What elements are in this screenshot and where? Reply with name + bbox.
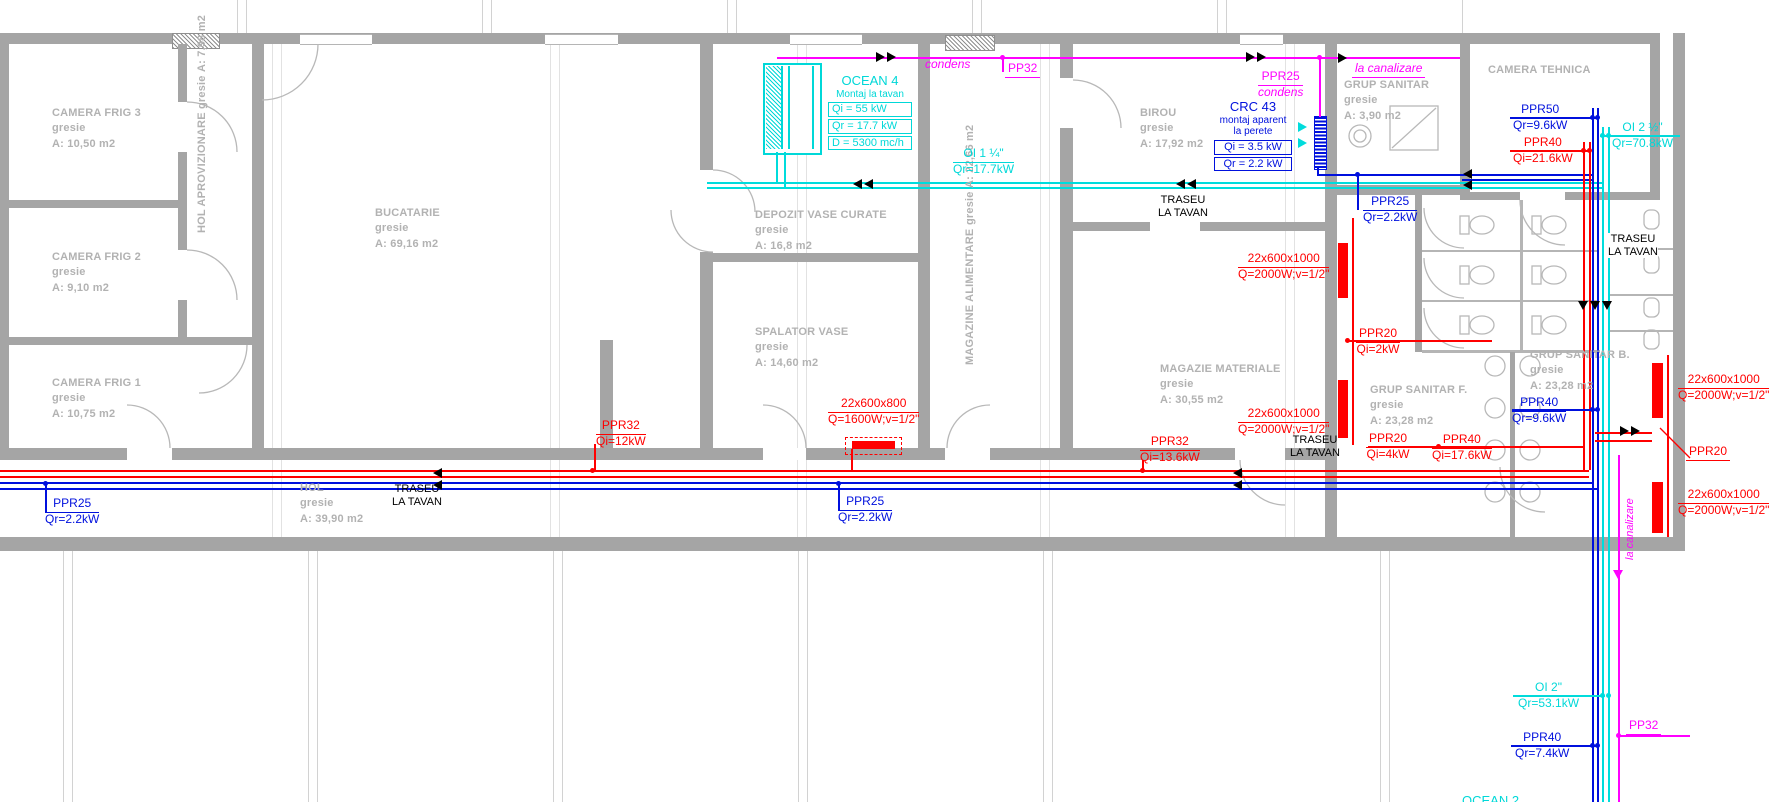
room-label-magazine-alimentare: MAGAZINE ALIMENTARE gresie A: 22,66 m2 (963, 205, 978, 365)
flow-arrow-icon (1176, 179, 1185, 189)
sink-icon (1520, 482, 1540, 502)
room-label-camera-frig-3: CAMERA FRIG 3 gresie A: 10,50 m2 (52, 106, 141, 152)
ocean2-label-clipped: OCEAN 2 (1462, 794, 1519, 802)
room-label-birou: BIROU gresie A: 17,92 m2 (1140, 106, 1203, 152)
crc43-qr: Qr = 2.2 kW (1214, 157, 1292, 172)
label-ppr40-qi216: PPR40 Qi=21.6kW (1513, 136, 1573, 166)
room-label-grup-sanitar: GRUP SANITAR gresie A: 3,90 m2 (1344, 78, 1429, 124)
label-ppr50: PPR50 Qr=9.6kW (1513, 103, 1567, 133)
flow-arrow-icon (1246, 52, 1255, 62)
pipe-heating-return-dashed (0, 488, 1597, 490)
ocean4-flow: D = 5300 mc/h (828, 136, 912, 151)
label-oi-2-12: OI 2 ½" Qr=70.8kW (1612, 121, 1673, 151)
junction-dot (1587, 148, 1592, 153)
junction-dot (1595, 407, 1600, 412)
floor-plan-canvas: CAMERA FRIG 3 gresie A: 10,50 m2 CAMERA … (0, 0, 1783, 802)
room-label-hol: HOL gresie A: 39,90 m2 (300, 481, 363, 527)
flow-arrow-icon (1602, 301, 1612, 310)
ocean4-qr: Qr = 17.7 kW (828, 119, 912, 134)
flow-arrow-icon (1257, 52, 1266, 62)
toilet-icon (1460, 266, 1494, 284)
label-traseu-la-tavan: TRASEU LA TAVAN (392, 483, 442, 508)
crc43-radiator (1314, 116, 1327, 170)
pipe-heating-return (0, 482, 1592, 484)
sink-icon (1485, 398, 1505, 418)
riser-chilled-dashed (1608, 127, 1610, 802)
crc43-qi: Qi = 3.5 kW (1214, 140, 1292, 155)
urinal-icon (1644, 210, 1659, 229)
junction-dot (43, 481, 48, 486)
radiator-branch-dashed (1352, 218, 1354, 445)
room-label-magazie-materiale: MAGAZIE MATERIALE gresie A: 30,55 m2 (1160, 362, 1281, 408)
ocean4-mount: Montaj la tavan (828, 89, 912, 101)
door-arc (1424, 208, 1464, 248)
flow-arrow-icon (1463, 180, 1472, 190)
ahu-divider (812, 66, 814, 149)
flow-arrow-icon (1298, 138, 1307, 148)
door-arc (947, 405, 990, 448)
label-ppr25-birou: PPR25 Qr=2.2kW (1363, 195, 1417, 225)
junction-dot (1606, 133, 1611, 138)
junction-dot (1595, 115, 1600, 120)
junction-dot (836, 481, 841, 486)
toilet-icon (1532, 266, 1566, 284)
ocean4-name: OCEAN 4 (828, 74, 912, 89)
room-label-depozit-vase-curate: DEPOZIT VASE CURATE gresie A: 16,8 m2 (755, 208, 887, 254)
sink-icon (1485, 482, 1505, 502)
flow-arrow-icon (1233, 468, 1242, 478)
label-ppr25-left: PPR25 Qr=2.2kW (45, 497, 99, 527)
crc43-name: CRC 43 (1214, 100, 1292, 115)
toilet-icon (1460, 216, 1494, 234)
flow-arrow-icon (1463, 169, 1472, 179)
radiator (852, 441, 895, 449)
toilet-icon (1460, 316, 1494, 334)
crc43-connector (1317, 168, 1319, 176)
junction-dot (1140, 468, 1145, 473)
label-rad-1000: 22x600x1000 Q=2000W;v=1/2" (1238, 252, 1329, 282)
label-rad-1000: 22x600x1000 Q=2000W;v=1/2" (1238, 407, 1329, 437)
junction-dot (1600, 693, 1605, 698)
junction-dot (1355, 172, 1360, 177)
crc43-label: CRC 43 montaj aparent la perete Qi = 3.5… (1214, 100, 1292, 171)
label-ppr40-qi176: PPR40 Qi=17.6kW (1432, 433, 1492, 463)
door-arc (199, 345, 247, 393)
label-traseu-la-tavan: TRASEU LA TAVAN (1290, 434, 1340, 459)
ahu-coil-hatch (766, 66, 783, 149)
radiator (1338, 243, 1348, 298)
junction-dot (1595, 743, 1600, 748)
urinal-icon (1644, 330, 1659, 349)
door-arc (671, 210, 713, 252)
riser-heating-return-dashed (1597, 108, 1599, 802)
flow-arrow-icon (1187, 179, 1196, 189)
label-ppr40-qr96: PPR40 Qr=9.6kW (1512, 396, 1566, 426)
label-ppr25-mid: PPR25 Qr=2.2kW (838, 495, 892, 525)
crc43-mount1: montaj aparent (1214, 115, 1292, 127)
door-arc (187, 250, 237, 300)
flow-arrow-icon (853, 179, 862, 189)
room-label-camera-frig-1: CAMERA FRIG 1 gresie A: 10,75 m2 (52, 376, 141, 422)
door-arc (1073, 80, 1121, 128)
flow-arrow-icon (1620, 426, 1629, 436)
pipe-ocean-drop-dashed (776, 152, 778, 182)
flow-arrow-icon (1233, 480, 1242, 490)
label-la-canalizare-top: la canalizare (1352, 62, 1425, 78)
pipe-canalizare-vertical (1618, 455, 1620, 802)
label-pp32-top: PP32 (1005, 62, 1040, 78)
label-ppr20-qi2: PPR20 Qi=2kW (1356, 327, 1400, 357)
flow-arrow-icon (887, 52, 896, 62)
sink-icon (1485, 356, 1505, 376)
radiator-feed-dashed (1595, 440, 1652, 442)
label-pp32-bottom: PP32 (1626, 719, 1661, 735)
junction-dot (1600, 133, 1605, 138)
door-arc (1424, 308, 1464, 348)
room-label-grup-sanitar-b: GRUP SANITAR B. gresie A: 23,28 m2 (1530, 348, 1630, 394)
room-label-grup-sanitar-f: GRUP SANITAR F. gresie A: 23,28 m2 (1370, 383, 1467, 429)
label-ppr40-qr74: PPR40 Qr=7.4kW (1515, 731, 1569, 761)
label-la-canalizare-bottom: la canalizare (1624, 483, 1637, 575)
radiator (1652, 482, 1663, 533)
leader (1620, 735, 1690, 737)
crc43-mount2: la perete (1214, 126, 1292, 138)
ocean4-label: OCEAN 4 Montaj la tavan Qi = 55 kW Qr = … (828, 74, 912, 150)
leader (1357, 174, 1359, 210)
junction-dot (1581, 148, 1586, 153)
label-ppr25-condens: PPR25 condens (1258, 70, 1303, 100)
flow-arrow-icon (1613, 570, 1623, 579)
label-oi-1-14: OI 1 ¼" Qr=17.7kW (953, 147, 1014, 177)
ocean4-qi: Qi = 55 kW (828, 102, 912, 117)
flow-arrow-icon (876, 52, 885, 62)
ahu-divider (788, 66, 790, 149)
flow-arrow-icon (864, 179, 873, 189)
flow-arrow-icon (1590, 301, 1600, 310)
sink-icon (1520, 440, 1540, 460)
leader (1002, 58, 1004, 72)
flow-arrow-icon (1338, 53, 1347, 63)
washbasin-icon (1349, 125, 1371, 147)
pipe-condens-drop (1319, 57, 1321, 117)
riser-heating-return (1592, 108, 1594, 802)
junction-dot (1606, 693, 1611, 698)
flow-arrow-icon (1578, 301, 1588, 310)
washbasin-icon (1354, 130, 1366, 142)
label-ppr20-right: PPR20 (1686, 445, 1730, 461)
radiator (1652, 363, 1663, 418)
room-label-hol-aprovizionare: HOL APROVIZIONARE gresie A: 7,98 m2 (195, 93, 210, 233)
toilet-icon (1532, 216, 1566, 234)
junction-dot (1345, 338, 1350, 343)
junction-dot (1317, 55, 1322, 60)
room-label-camera-tehnica: CAMERA TEHNICA (1488, 63, 1591, 78)
pipe-heating-supply-dashed (0, 476, 1589, 478)
label-traseu-la-tavan: TRASEU LA TAVAN (1608, 233, 1658, 258)
junction-dot (1000, 55, 1005, 60)
flow-arrow-icon (1298, 122, 1307, 132)
riser-chilled (1602, 127, 1604, 802)
label-rad-1000: 22x600x1000 Q=2000W;v=1/2" (1678, 488, 1769, 518)
label-rad-1000: 22x600x1000 Q=2000W;v=1/2" (1678, 373, 1769, 403)
label-oi-2: OI 2" Qr=53.1kW (1518, 681, 1579, 711)
door-arc (1424, 258, 1464, 298)
flow-arrow-icon (433, 468, 442, 478)
door-arc (713, 170, 755, 212)
room-label-camera-frig-2: CAMERA FRIG 2 gresie A: 9,10 m2 (52, 250, 141, 296)
label-ppr32-qi12: PPR32 Qi=12kW (596, 419, 646, 449)
urinal-icon (1644, 298, 1659, 317)
pipe-ocean-drop (784, 152, 786, 187)
pipe-return (1462, 179, 1592, 181)
label-traseu-la-tavan: TRASEU LA TAVAN (1158, 194, 1208, 219)
junction-dot (590, 468, 595, 473)
room-label-bucatarie: BUCATARIE gresie A: 69,16 m2 (375, 206, 440, 252)
radiator (1338, 380, 1348, 438)
label-condens: condens (925, 58, 970, 72)
label-rad-800: 22x600x800 Q=1600W;v=1/2" (828, 397, 919, 427)
door-arc (763, 405, 806, 448)
door-arc (262, 44, 318, 100)
junction-dot (1616, 733, 1621, 738)
toilet-icon (1532, 316, 1566, 334)
radiator-branch-dashed (1667, 355, 1669, 537)
flow-arrow-icon (1631, 426, 1640, 436)
radiator-riser (851, 449, 853, 470)
room-label-spalator-vase: SPALATOR VASE gresie A: 14,60 m2 (755, 325, 848, 371)
pipe-heating-supply (0, 470, 1589, 472)
label-ppr20-qi4: PPR20 Qi=4kW (1366, 432, 1410, 462)
label-ppr32-qi136: PPR32 Qi=13.6kW (1140, 435, 1200, 465)
